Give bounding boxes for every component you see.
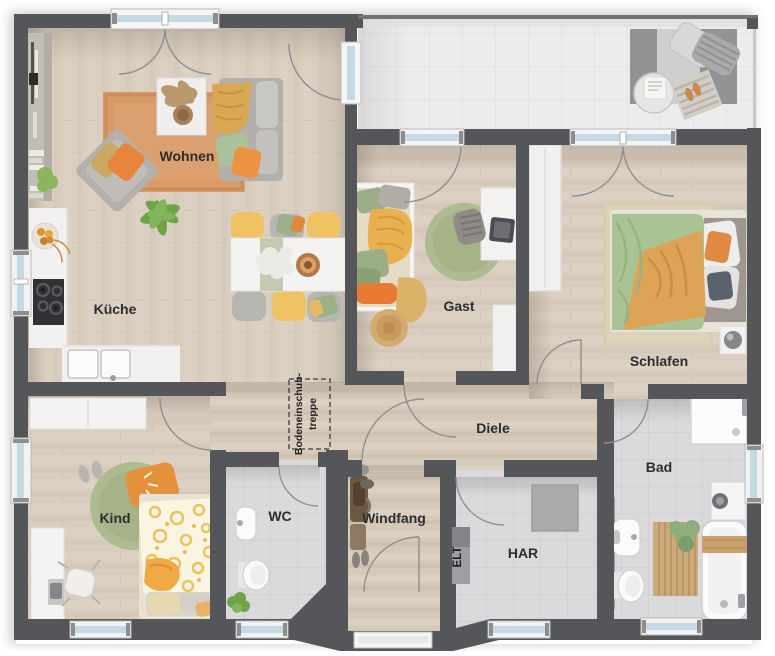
svg-text:WC: WC: [268, 508, 291, 524]
svg-text:Windfang: Windfang: [362, 510, 426, 526]
svg-text:treppe: treppe: [307, 398, 319, 430]
svg-text:Schlafen: Schlafen: [630, 353, 688, 369]
svg-text:ELT: ELT: [452, 547, 464, 568]
svg-text:Gast: Gast: [443, 298, 474, 314]
svg-text:Bodeneinschub-: Bodeneinschub-: [293, 372, 305, 455]
svg-text:HAR: HAR: [508, 545, 538, 561]
svg-text:Kind: Kind: [99, 510, 130, 526]
svg-text:Bad: Bad: [646, 459, 672, 475]
svg-text:Diele: Diele: [476, 420, 510, 436]
svg-text:Wohnen: Wohnen: [160, 148, 215, 164]
svg-text:Küche: Küche: [94, 301, 137, 317]
